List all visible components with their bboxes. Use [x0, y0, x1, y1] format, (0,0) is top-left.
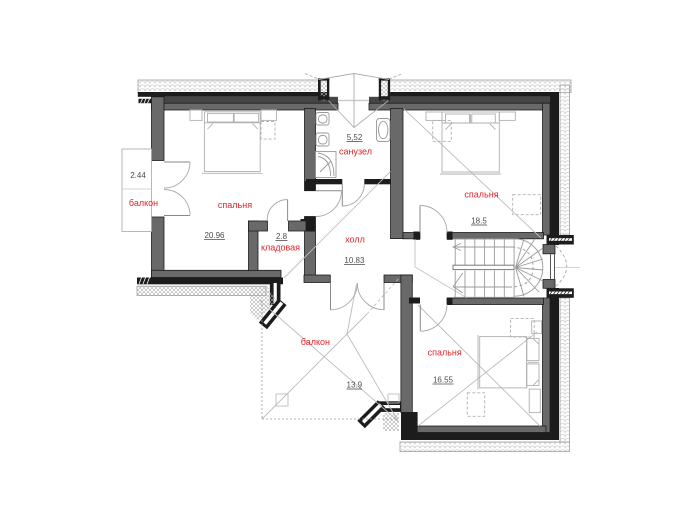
svg-text:холл: холл: [345, 235, 365, 245]
svg-text:5,52: 5,52: [347, 133, 363, 142]
svg-text:балкон: балкон: [129, 198, 158, 208]
svg-text:16.55: 16.55: [433, 376, 454, 385]
svg-text:10.83: 10.83: [344, 256, 365, 265]
svg-text:2.44: 2.44: [130, 171, 146, 180]
svg-text:спальня: спальня: [428, 348, 462, 358]
svg-text:2.8: 2.8: [276, 232, 288, 241]
svg-text:13.9: 13.9: [347, 381, 363, 390]
svg-text:спальня: спальня: [218, 200, 252, 210]
svg-text:18.5: 18.5: [471, 217, 487, 226]
svg-text:санузел: санузел: [339, 147, 372, 157]
svg-text:20.96: 20.96: [204, 231, 225, 240]
svg-text:балкон: балкон: [301, 337, 330, 347]
svg-text:спальня: спальня: [464, 190, 498, 200]
svg-text:кладовая: кладовая: [261, 243, 300, 253]
